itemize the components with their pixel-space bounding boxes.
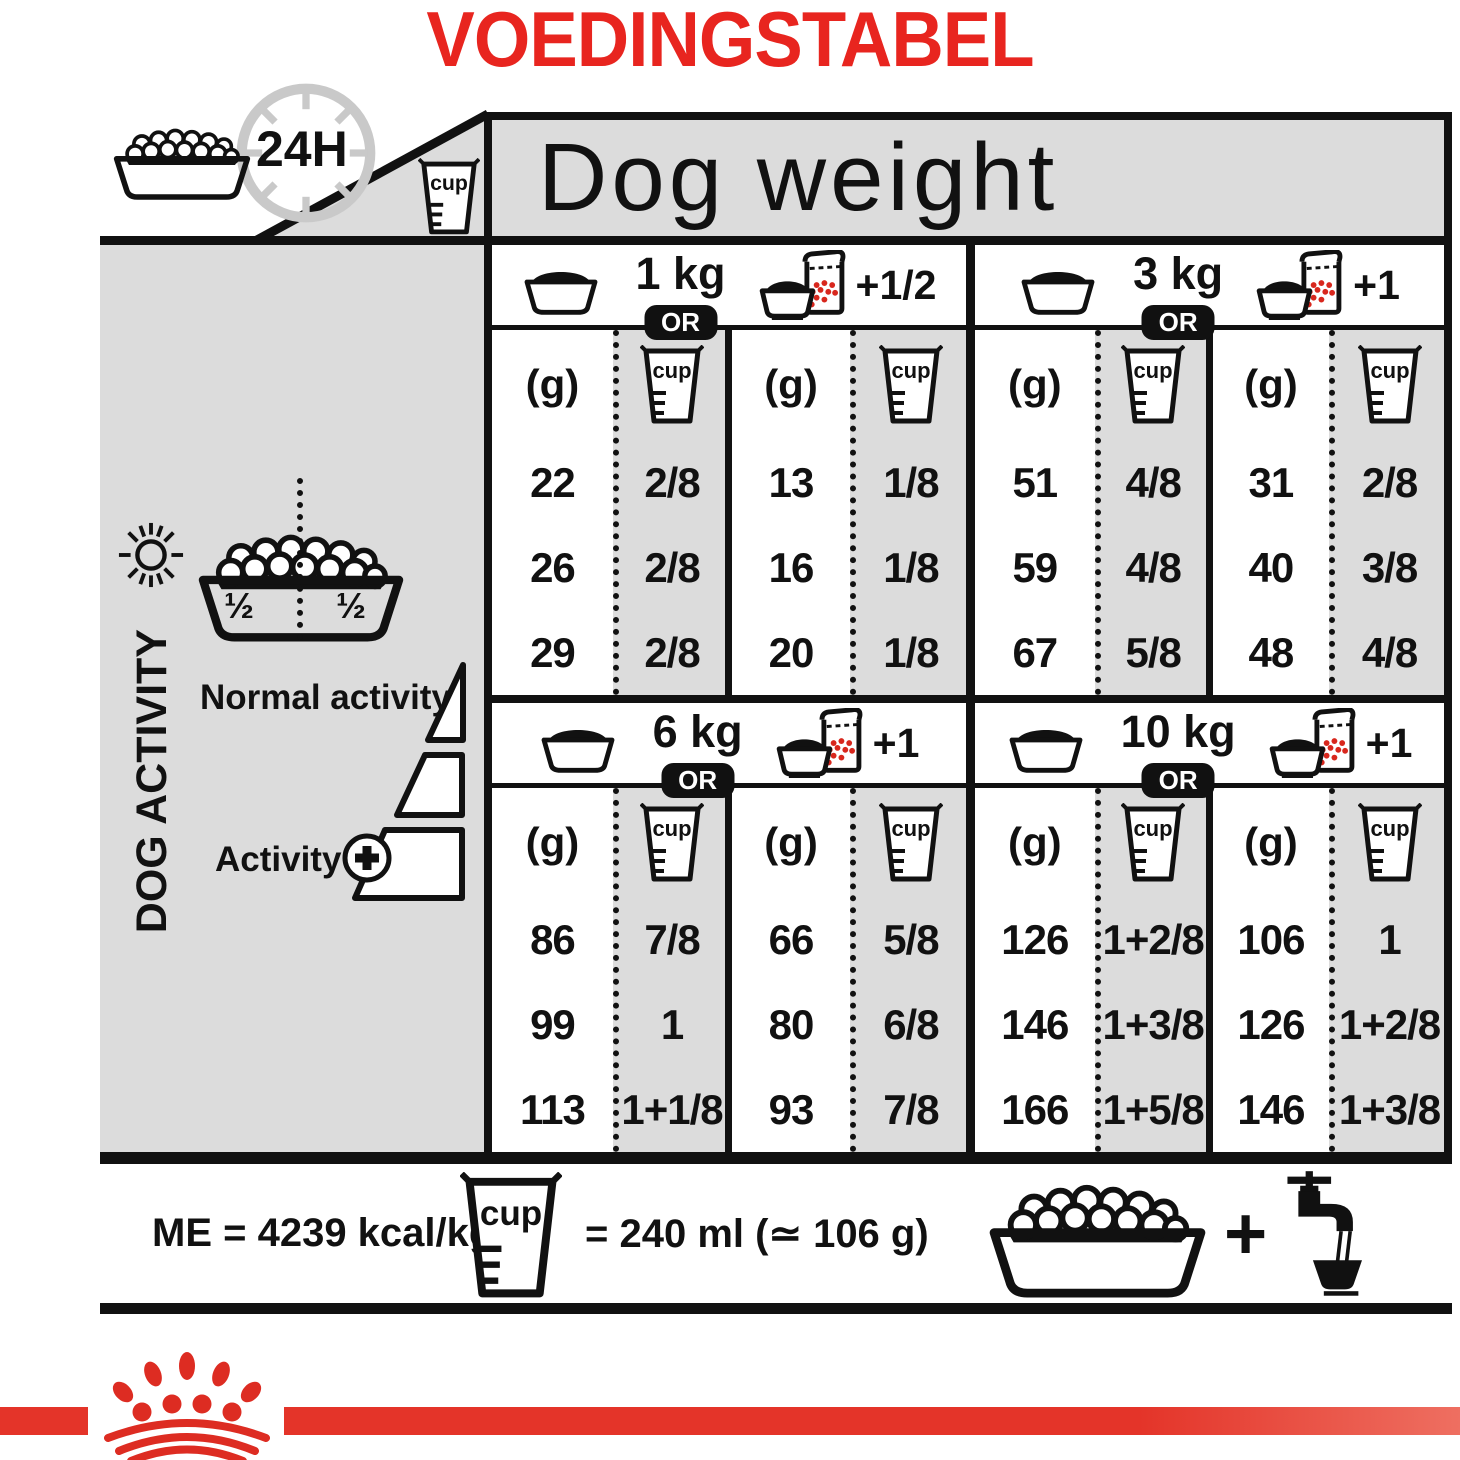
wet-pouch-icon (1253, 250, 1347, 322)
value-cell: 13 (732, 440, 850, 525)
weight-label: 3 kg (1133, 248, 1223, 300)
dry-cups-column: 2/8 2/8 2/8 (613, 330, 725, 695)
sun-icon (117, 521, 185, 589)
dry-bowl-icon (1019, 265, 1097, 316)
grams-header: (g) (1008, 361, 1062, 409)
value-cell: 5/8 (856, 898, 966, 983)
mixed-grams-column: (g) 31 40 48 (1206, 330, 1329, 695)
weight-label: 1 kg (636, 248, 726, 300)
grams-header: (g) (764, 819, 818, 867)
value-cell: 29 (492, 610, 613, 695)
or-badge: OR (661, 763, 734, 798)
value-cell: 4/8 (1101, 525, 1206, 610)
wet-pouch-icon (756, 250, 850, 322)
dry-grams-column: (g) 51 59 67 (975, 330, 1095, 695)
dry-bowl-icon (522, 265, 600, 316)
dry-bowl-icon (539, 723, 617, 774)
dog-activity-axis: DOG ACTIVITY (126, 652, 178, 910)
value-cell: 1/8 (856, 610, 966, 695)
value-cell: 99 (492, 983, 613, 1068)
dry-grams-column: (g) 126 146 166 (975, 788, 1095, 1152)
dog-weight-label: Dog weight (492, 130, 1058, 226)
value-cell: 2/8 (619, 440, 725, 525)
value-cell: 7/8 (856, 1067, 966, 1152)
value-cell: 66 (732, 898, 850, 983)
value-cell: 40 (1213, 525, 1329, 610)
section-6kg-table: (g) 86 99 113 7/8 1 1+1/8 (g) 66 80 93 5… (492, 788, 966, 1152)
value-cell: 1+3/8 (1101, 983, 1206, 1068)
section-3kg-table: (g) 51 59 67 4/8 4/8 5/8 (g) 31 40 48 2/… (975, 330, 1444, 695)
table-right-border (1444, 112, 1452, 1164)
weight-label: 6 kg (653, 706, 743, 758)
activity-level-steps-icon (340, 650, 466, 906)
section-10kg: 10 kg OR +1 (g) 126 146 166 1+2/8 1+3/8 … (975, 703, 1444, 1152)
activity-plus-label: Activity (215, 840, 341, 880)
ration-split-dotted-line (297, 478, 303, 640)
measuring-cup-icon (460, 1172, 562, 1300)
value-cell: 1+3/8 (1335, 1067, 1444, 1152)
grams-header: (g) (1244, 819, 1298, 867)
or-badge: OR (1142, 305, 1215, 340)
table-left-border (484, 112, 492, 1164)
mixed-grams-column: (g) 106 126 146 (1206, 788, 1329, 1152)
half-morning-label: ½ (224, 585, 254, 627)
measuring-cup-icon (879, 345, 943, 425)
value-cell: 26 (492, 525, 613, 610)
measuring-cup-icon (879, 803, 943, 883)
value-cell: 4/8 (1335, 610, 1444, 695)
value-cell: 48 (1213, 610, 1329, 695)
section-6kg-header: 6 kg OR +1 (492, 703, 966, 788)
section-3kg: 3 kg OR +1 (g) 51 59 67 4/8 4/8 5/8 (g) … (975, 245, 1444, 695)
value-cell: 126 (1213, 983, 1329, 1068)
measuring-cup-icon (640, 345, 704, 425)
section-3kg-header: 3 kg OR +1 (975, 245, 1444, 330)
value-cell: 1+2/8 (1101, 898, 1206, 983)
measuring-cup-icon (1358, 345, 1422, 425)
royal-canin-crown-icon (92, 1350, 282, 1460)
plus-circle-icon (345, 836, 389, 880)
value-cell: 4/8 (1101, 440, 1206, 525)
table-center-border (966, 245, 975, 1152)
table-bottom-border (100, 1152, 1452, 1164)
dry-cups-column: 7/8 1 1+1/8 (613, 788, 725, 1152)
value-cell: 146 (975, 983, 1095, 1068)
or-badge: OR (644, 305, 717, 340)
metabolizable-energy-label: ME = 4239 kcal/kg (152, 1164, 493, 1303)
wet-add-label: +1 (1366, 720, 1413, 767)
value-cell: 1+5/8 (1101, 1067, 1206, 1152)
section-6kg: 6 kg OR +1 (g) 86 99 113 7/8 1 1+1/8 (g)… (492, 703, 966, 1152)
value-cell: 51 (975, 440, 1095, 525)
section-1kg-header: 1 kg OR +1/2 (492, 245, 966, 330)
value-cell: 146 (1213, 1067, 1329, 1152)
dry-grams-column: (g) 86 99 113 (492, 788, 613, 1152)
value-cell: 59 (975, 525, 1095, 610)
mixed-grams-column: (g) 13 16 20 (725, 330, 850, 695)
footer-bottom-border (100, 1303, 1452, 1314)
feeding-table-page: cup (0, 0, 1460, 1460)
page-title: VOEDINGSTABEL (51, 0, 1409, 85)
value-cell: 2/8 (619, 610, 725, 695)
grams-header: (g) (764, 361, 818, 409)
value-cell: 2/8 (619, 525, 725, 610)
value-cell: 1 (1335, 898, 1444, 983)
value-cell: 166 (975, 1067, 1095, 1152)
grams-header: (g) (526, 819, 580, 867)
value-cell: 113 (492, 1067, 613, 1152)
value-cell: 6/8 (856, 983, 966, 1068)
value-cell: 7/8 (619, 898, 725, 983)
value-cell: 86 (492, 898, 613, 983)
wet-pouch-icon (773, 708, 867, 780)
measuring-cup-icon (1121, 803, 1185, 883)
value-cell: 1 (619, 983, 725, 1068)
measuring-cup-icon (418, 158, 480, 236)
mixed-cups-column: 1 1+2/8 1+3/8 (1329, 788, 1444, 1152)
dry-bowl-icon (1007, 723, 1085, 774)
grams-header: (g) (1244, 361, 1298, 409)
value-cell: 67 (975, 610, 1095, 695)
mixed-cups-column: 5/8 6/8 7/8 (850, 788, 966, 1152)
header-bottom-border (100, 236, 1452, 245)
value-cell: 126 (975, 898, 1095, 983)
value-cell: 22 (492, 440, 613, 525)
plus-sign: + (1224, 1164, 1267, 1303)
value-cell: 1+1/8 (619, 1067, 725, 1152)
cup-volume-label: = 240 ml (≃ 106 g) (585, 1164, 929, 1303)
section-10kg-table: (g) 126 146 166 1+2/8 1+3/8 1+5/8 (g) 10… (975, 788, 1444, 1152)
value-cell: 20 (732, 610, 850, 695)
mixed-cups-column: 2/8 3/8 4/8 (1329, 330, 1444, 695)
duration-24h-label: 24H (256, 120, 348, 178)
moon-icon (413, 522, 457, 580)
table-top-border (484, 112, 1452, 120)
value-cell: 106 (1213, 898, 1329, 983)
weight-label: 10 kg (1121, 706, 1236, 758)
value-cell: 80 (732, 983, 850, 1068)
half-evening-label: ½ (336, 585, 366, 627)
grams-header: (g) (1008, 819, 1062, 867)
section-1kg: 1 kg OR +1/2 (g) 22 26 29 2/8 2/8 2/8 (g… (492, 245, 966, 695)
tap-water-icon (1262, 1166, 1362, 1300)
dog-activity-label: DOG ACTIVITY (128, 629, 177, 933)
measuring-cup-icon (1121, 345, 1185, 425)
dry-grams-column: (g) 22 26 29 (492, 330, 613, 695)
dry-cups-column: 1+2/8 1+3/8 1+5/8 (1095, 788, 1206, 1152)
value-cell: 16 (732, 525, 850, 610)
section-10kg-header: 10 kg OR +1 (975, 703, 1444, 788)
wet-add-label: +1/2 (856, 262, 937, 309)
dog-weight-header: Dog weight (492, 120, 1444, 236)
wet-add-label: +1 (873, 720, 920, 767)
value-cell: 1+2/8 (1335, 983, 1444, 1068)
wet-pouch-icon (1266, 708, 1360, 780)
value-cell: 3/8 (1335, 525, 1444, 610)
value-cell: 2/8 (1335, 440, 1444, 525)
value-cell: 1/8 (856, 525, 966, 610)
grams-header: (g) (526, 361, 580, 409)
wet-add-label: +1 (1353, 262, 1400, 309)
value-cell: 1/8 (856, 440, 966, 525)
mixed-grams-column: (g) 66 80 93 (725, 788, 850, 1152)
measuring-cup-icon (640, 803, 704, 883)
mixed-cups-column: 1/8 1/8 1/8 (850, 330, 966, 695)
food-bowl-icon (108, 124, 256, 201)
value-cell: 93 (732, 1067, 850, 1152)
dry-cups-column: 4/8 4/8 5/8 (1095, 330, 1206, 695)
or-badge: OR (1142, 763, 1215, 798)
value-cell: 31 (1213, 440, 1329, 525)
measuring-cup-icon (1358, 803, 1422, 883)
value-cell: 5/8 (1101, 610, 1206, 695)
food-bowl-icon (980, 1178, 1215, 1299)
section-1kg-table: (g) 22 26 29 2/8 2/8 2/8 (g) 13 16 20 1/… (492, 330, 966, 695)
